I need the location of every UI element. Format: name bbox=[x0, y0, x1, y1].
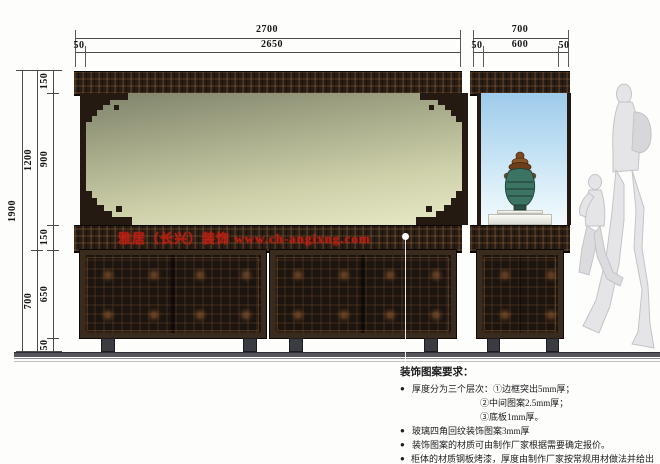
note-text: 装饰图案的材质可由制作厂家根据需要确定报价。 bbox=[412, 438, 610, 452]
note-text: 柜体的材质钢板烤漆，厚度由制作厂家按常规用材做法并给出报价。 bbox=[411, 452, 658, 464]
corner-scroll-ornament-top-left bbox=[86, 93, 132, 133]
corner-scroll-ornament-top-right bbox=[416, 93, 462, 133]
floor-line bbox=[14, 358, 660, 359]
dim-top-small-offset-left: 50 bbox=[469, 41, 485, 51]
dim-line-left-segments bbox=[53, 70, 54, 352]
notes-title: 装饰图案要求： bbox=[400, 364, 658, 379]
corner-scroll-ornament-bottom-left bbox=[86, 185, 132, 225]
note-item: ②中间图案2.5mm厚； bbox=[400, 396, 658, 410]
floor-bar bbox=[14, 352, 660, 357]
note-text: ②中间图案2.5mm厚； bbox=[480, 396, 568, 410]
small-cabinet-glass-panel bbox=[477, 93, 571, 225]
note-text: 厚度分为三个层次：①边框突出5mm厚； bbox=[412, 382, 575, 396]
note-item: ● 柜体的材质钢板烤漆，厚度由制作厂家按常规用材做法并给出报价。 bbox=[400, 452, 658, 464]
dim-line-left-groups bbox=[37, 70, 38, 352]
note-item: ● 厚度分为三个层次：①边框突出5mm厚； bbox=[400, 382, 658, 396]
large-cabinet-glass-panel bbox=[80, 93, 468, 225]
dim-line-top-small-inner bbox=[473, 52, 568, 53]
bronze-vase-illustration bbox=[502, 151, 538, 211]
bullet-icon: ● bbox=[400, 382, 412, 396]
note-item: ● 玻璃四角回纹装饰图案3mm厚 bbox=[400, 424, 658, 438]
dim-tick bbox=[16, 70, 62, 71]
cabinet-foot bbox=[289, 338, 303, 352]
note-text: 玻璃四角回纹装饰图案3mm厚 bbox=[412, 424, 530, 438]
corner-scroll-ornament-bottom-right bbox=[416, 185, 462, 225]
watermark-text: 雅居（长兴）装饰 www.ch-angixng.com bbox=[118, 228, 371, 247]
extension-line bbox=[460, 30, 461, 67]
decoration-notes: 装饰图案要求： ● 厚度分为三个层次：①边框突出5mm厚； ②中间图案2.5mm… bbox=[400, 364, 658, 464]
dim-top-small-offset-right: 50 bbox=[556, 41, 572, 51]
cabinet-foot bbox=[546, 338, 559, 352]
note-text: ③底板1mm厚。 bbox=[480, 410, 544, 424]
dim-line-top-large-inner bbox=[75, 52, 460, 53]
cabinet-foot bbox=[243, 338, 257, 352]
dim-line-left-total bbox=[22, 70, 23, 352]
scale-figure-silhouette bbox=[578, 80, 660, 356]
bullet-icon: ● bbox=[400, 438, 412, 452]
furniture-elevation-drawing: 2700 50 2650 700 50 600 50 1900 1200 700… bbox=[0, 0, 660, 464]
dim-left-upper: 1200 bbox=[24, 143, 34, 177]
dim-left-seg-900: 900 bbox=[40, 142, 50, 176]
dim-top-large-inner: 2650 bbox=[242, 40, 302, 50]
bullet-icon: ● bbox=[400, 424, 412, 438]
small-cabinet-lower-chest bbox=[477, 250, 563, 338]
leader-line bbox=[405, 239, 406, 362]
dim-top-large-offset-left: 50 bbox=[70, 41, 88, 51]
dim-top-large-total: 2700 bbox=[237, 25, 297, 35]
dim-top-small-total: 700 bbox=[500, 25, 540, 35]
note-item: ③底板1mm厚。 bbox=[400, 410, 658, 424]
dim-left-seg-150-top: 150 bbox=[40, 64, 50, 98]
cabinet-foot bbox=[424, 338, 438, 352]
dim-left-total: 1900 bbox=[8, 194, 18, 228]
cabinet-foot bbox=[101, 338, 115, 352]
cabinet-foot bbox=[487, 338, 500, 352]
dim-left-seg-150-mid: 150 bbox=[40, 220, 50, 254]
dim-left-seg-650: 650 bbox=[40, 277, 50, 311]
bullet-icon: ● bbox=[400, 452, 411, 464]
large-cabinet-lower-chest-left bbox=[80, 250, 266, 338]
dim-left-lower: 700 bbox=[24, 284, 34, 318]
small-cabinet-middle-carved-band bbox=[470, 225, 570, 253]
dim-top-small-inner: 600 bbox=[503, 40, 537, 50]
large-cabinet-lower-chest-right bbox=[270, 250, 456, 338]
floor-line bbox=[14, 361, 660, 362]
note-item: ● 装饰图案的材质可由制作厂家根据需要确定报价。 bbox=[400, 438, 658, 452]
display-pedestal bbox=[488, 214, 552, 225]
